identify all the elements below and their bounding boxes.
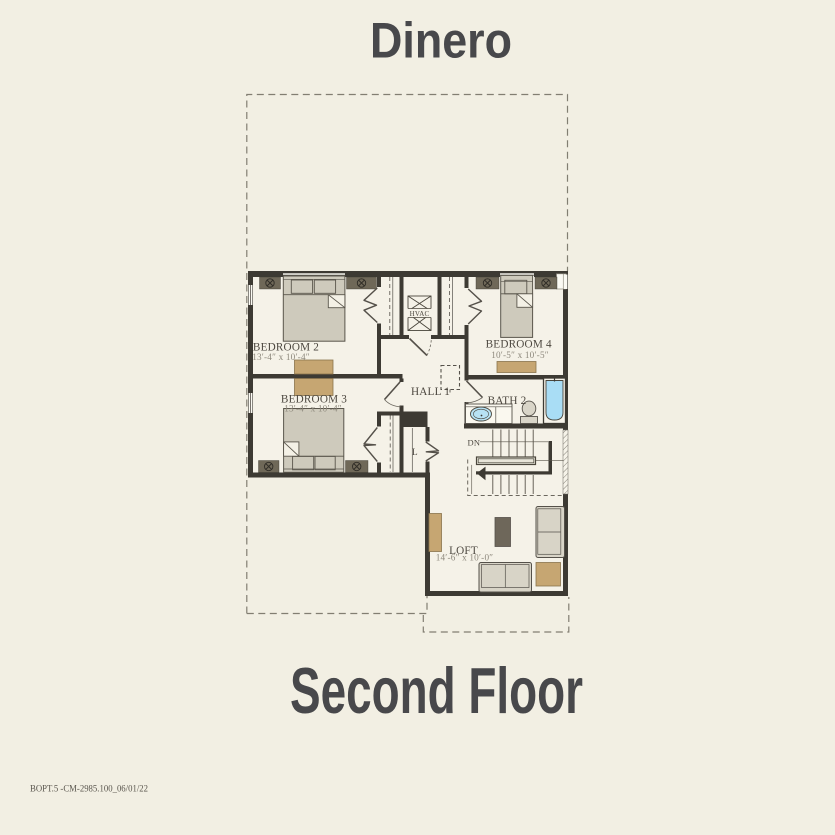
svg-text:Dinero: Dinero [370,13,512,69]
svg-text:BEDROOM 4: BEDROOM 4 [486,339,552,351]
svg-text:HVAC: HVAC [410,310,430,318]
svg-text:10′-5″ x 10′-5″: 10′-5″ x 10′-5″ [491,350,549,360]
svg-text:14′-6″ x 10′-0″: 14′-6″ x 10′-0″ [436,553,494,563]
svg-text:BATH 2: BATH 2 [488,395,527,407]
svg-text:13′-4″ x 10′-4″: 13′-4″ x 10′-4″ [252,352,310,362]
svg-text:13′-4″ x 10′-4″: 13′-4″ x 10′-4″ [284,404,342,414]
svg-text:DN: DN [468,437,481,447]
svg-text:BOPT.5 -CM-2985.100_06/01/22: BOPT.5 -CM-2985.100_06/01/22 [30,785,148,795]
svg-text:HALL 1: HALL 1 [411,386,450,398]
svg-text:L: L [412,447,418,457]
svg-text:Second Floor: Second Floor [290,654,583,727]
